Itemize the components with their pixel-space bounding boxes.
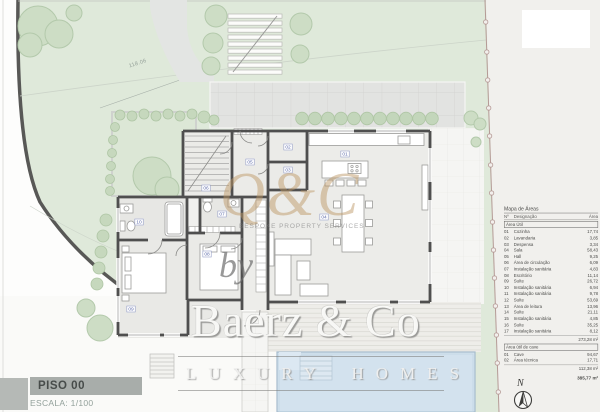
floor-label-block bbox=[0, 378, 28, 410]
subtotal-util: 273,28 m² bbox=[504, 335, 598, 342]
room-label: 03 bbox=[284, 167, 293, 174]
room-label: 07 bbox=[218, 211, 227, 218]
subtotal-cave: 112,38 m² bbox=[504, 365, 598, 372]
blank-label-box bbox=[522, 10, 590, 48]
room-label: 04 bbox=[320, 214, 329, 221]
room-label: 02 bbox=[284, 144, 293, 151]
room-label: 01 bbox=[341, 151, 350, 158]
room-label: 08 bbox=[203, 251, 212, 258]
area-table-title: Mapa de Áreas bbox=[504, 206, 598, 213]
entry-walkway bbox=[242, 312, 268, 412]
table-row: 17Instalação sanitária8,12 bbox=[504, 328, 598, 334]
side-terrace bbox=[428, 128, 484, 304]
pool bbox=[277, 352, 475, 412]
room-label: 05 bbox=[246, 159, 255, 166]
pool-steps bbox=[300, 356, 332, 380]
room-label: 09 bbox=[127, 306, 136, 313]
watermark-rule-top bbox=[178, 356, 444, 357]
room-label: 06 bbox=[202, 185, 211, 192]
area-table: Mapa de Áreas Nº Designação Área Área Út… bbox=[504, 206, 598, 412]
hedge-row bbox=[296, 112, 439, 125]
garden-steps bbox=[150, 354, 174, 378]
table-row: 02Área técnica17,71 bbox=[504, 357, 598, 363]
area-section-header: Área útil de cave bbox=[504, 344, 598, 351]
room-label: 10 bbox=[135, 219, 144, 226]
watermark-rule-bottom bbox=[178, 390, 444, 391]
scale-label: ESCALA: 1/100 bbox=[30, 398, 93, 408]
pergola bbox=[228, 14, 282, 74]
area-table-header: Nº Designação Área bbox=[504, 214, 598, 220]
area-section-header: Área Útil bbox=[504, 221, 598, 228]
total-area: 385,77 m² bbox=[504, 376, 598, 381]
deck bbox=[256, 302, 481, 352]
floorplan-page: 01 02 03 04 05 06 07 08 09 10 118.06 Q&C… bbox=[0, 0, 600, 412]
floor-label: PISO 00 bbox=[30, 377, 142, 395]
